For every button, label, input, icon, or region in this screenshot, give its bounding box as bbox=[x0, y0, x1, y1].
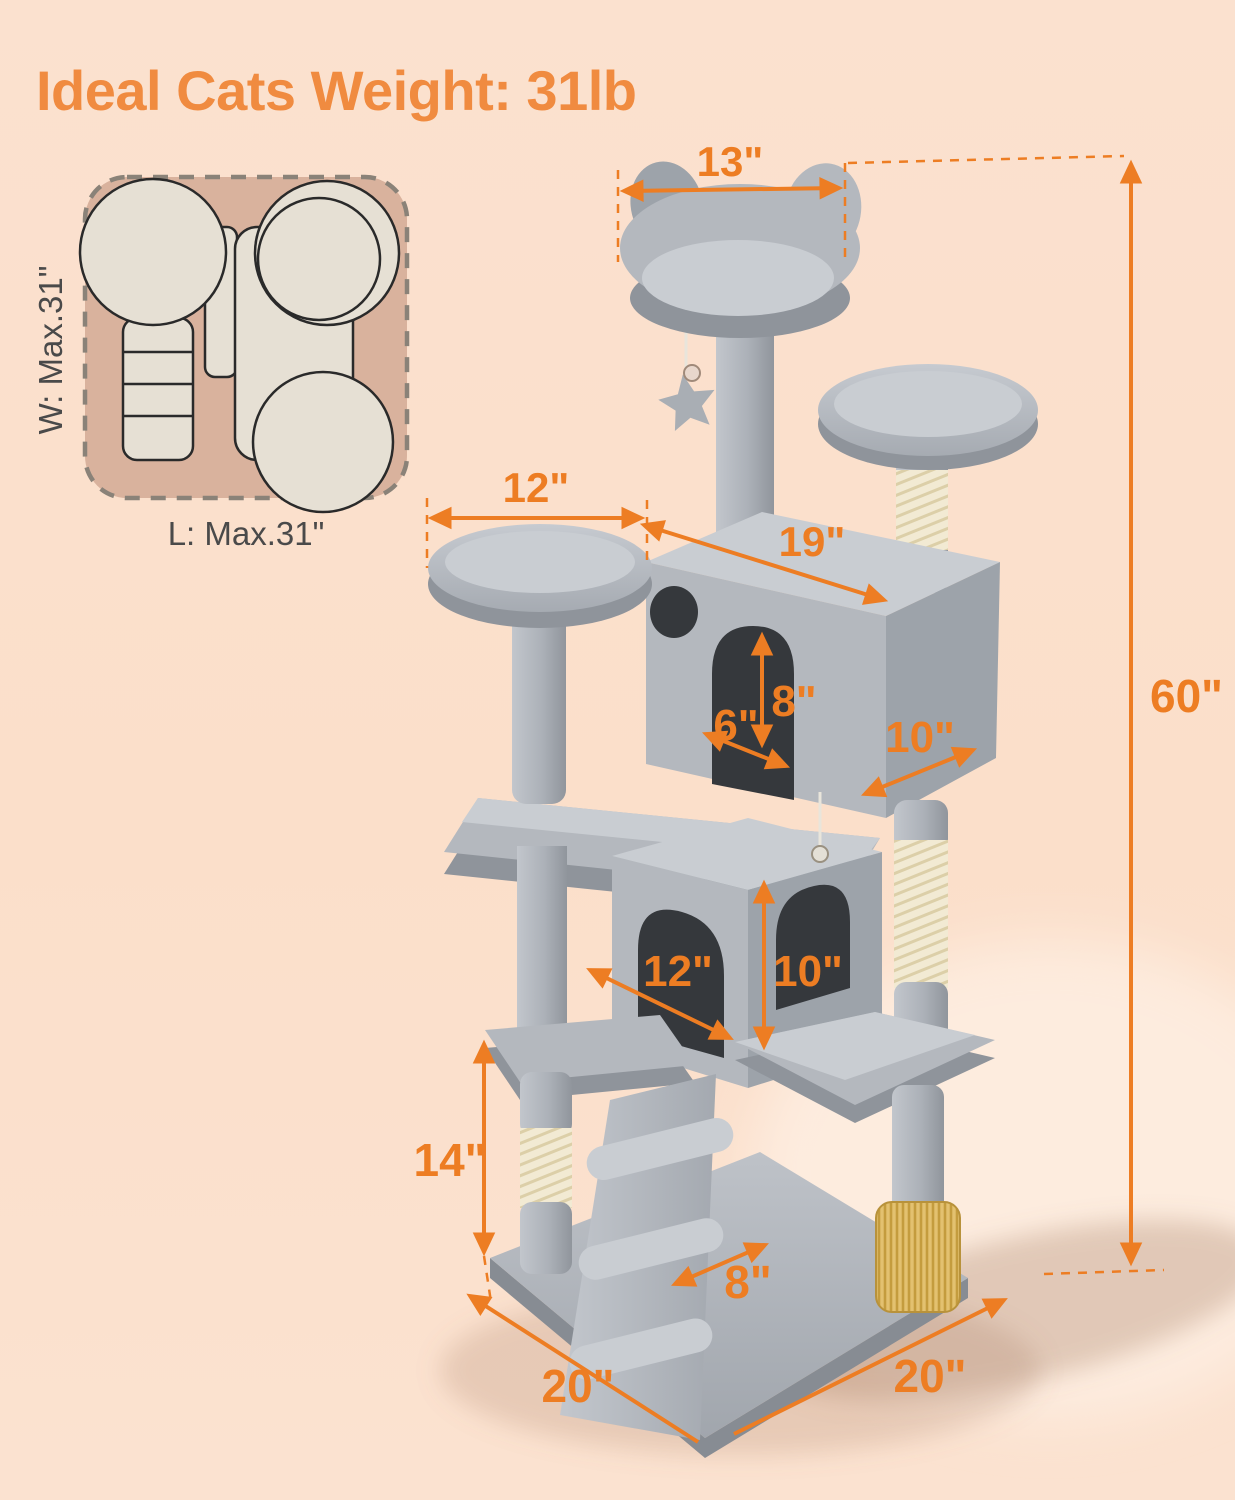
right-perch-post-sisal bbox=[896, 470, 948, 550]
bell-icon bbox=[684, 365, 700, 381]
left-post-lower bbox=[520, 1072, 572, 1274]
dim-label-14: 14" bbox=[414, 1134, 487, 1186]
right-post-upper bbox=[894, 800, 948, 1052]
dim-label-12-low: 12" bbox=[643, 947, 713, 996]
footprint-perch-1 bbox=[80, 179, 226, 325]
left-perch bbox=[428, 524, 652, 804]
dim-label-20-left: 20" bbox=[542, 1360, 615, 1412]
dim-label-19: 19" bbox=[779, 518, 846, 565]
scratching-post-sisal bbox=[894, 840, 948, 988]
dim-label-12-top: 12" bbox=[503, 464, 570, 511]
upper-condo-peephole bbox=[650, 586, 698, 638]
footprint-ramp bbox=[123, 318, 193, 460]
dim-label-20-right: 20" bbox=[894, 1350, 967, 1402]
left-post-middle bbox=[517, 846, 567, 1038]
dim-label-10-low: 10" bbox=[773, 947, 843, 996]
dim-label-8-door: 8" bbox=[771, 677, 816, 726]
footprint-length-label: L: Max.31" bbox=[168, 515, 325, 552]
star-icon bbox=[658, 375, 714, 432]
dim-label-13: 13" bbox=[697, 138, 764, 185]
left-perch-post bbox=[512, 612, 566, 804]
grooming-brush bbox=[876, 1202, 960, 1312]
dim-label-60: 60" bbox=[1150, 670, 1223, 722]
footprint-diagram: W: Max.31" L: Max.31" bbox=[32, 177, 407, 552]
footprint-perch-3 bbox=[253, 372, 393, 512]
dim-label-8-ramp: 8" bbox=[724, 1256, 771, 1308]
dim-lower-post: 14" bbox=[414, 1044, 491, 1302]
product-dimension-image: Ideal Cats Weight: 31lb bbox=[0, 0, 1235, 1500]
dim-label-6: 6" bbox=[713, 701, 758, 750]
bell-icon bbox=[812, 846, 828, 862]
cat-tree-diagram: W: Max.31" L: Max.31" bbox=[0, 0, 1235, 1500]
footprint-perch-2-rim bbox=[258, 198, 380, 320]
dim-label-10-top: 10" bbox=[885, 713, 955, 762]
scratching-post-sisal bbox=[520, 1128, 572, 1208]
footprint-width-label: W: Max.31" bbox=[32, 266, 69, 435]
